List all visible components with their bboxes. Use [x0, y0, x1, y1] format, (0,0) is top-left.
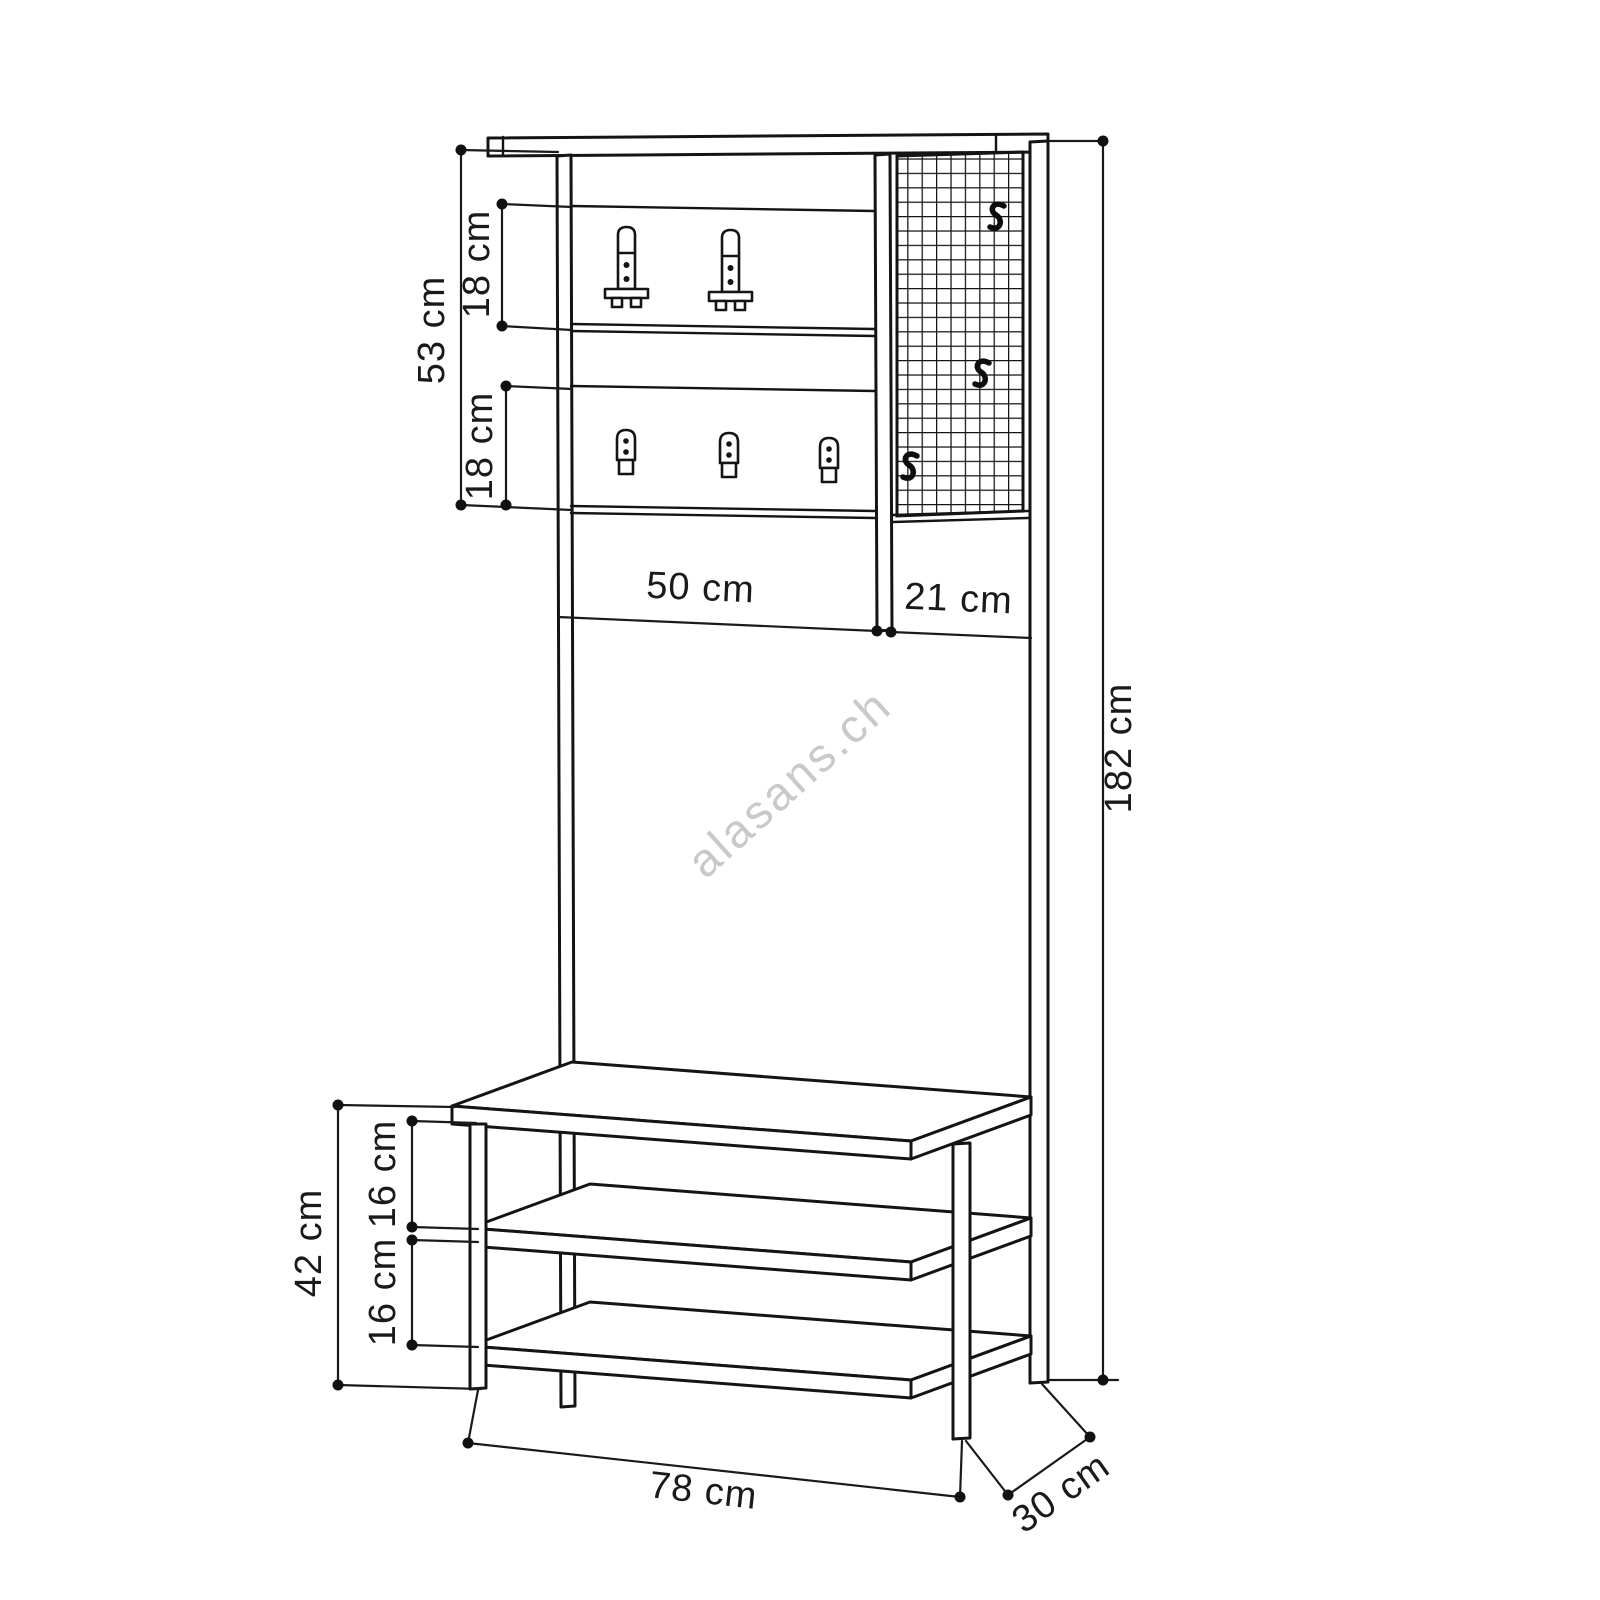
dimension-16cm-upper: 16 cm	[362, 1116, 478, 1233]
extension-line	[412, 1345, 478, 1347]
dimension-21cm: 21 cm	[886, 576, 1032, 638]
panel-line	[571, 324, 875, 329]
extension-line	[412, 1240, 478, 1242]
small-hook-icon	[617, 430, 635, 474]
dimension-label-21cm: 21 cm	[903, 576, 1013, 623]
right-post	[1030, 141, 1048, 1383]
dimension-label-53cm: 53 cm	[411, 276, 453, 384]
bench-seat	[452, 1062, 1031, 1159]
dimension-18cm-lower: 18 cm	[459, 381, 572, 511]
dimension-dot	[333, 1100, 344, 1111]
drawing-svg: 53 cm 18 cm 18 cm 50 cm 21	[0, 0, 1600, 1600]
extension-line	[468, 1390, 478, 1443]
bench-leg-front-right	[953, 1143, 970, 1439]
dimension-dot	[497, 199, 508, 210]
bench	[452, 1062, 1031, 1439]
dimension-dot	[1003, 1490, 1014, 1501]
mesh-grid-panel	[893, 152, 1028, 522]
dimension-dot	[407, 1116, 418, 1127]
extension-line	[966, 1441, 1008, 1495]
dimension-dot	[407, 1222, 418, 1233]
bench-leg-front-left	[470, 1124, 486, 1389]
panel-line	[571, 506, 875, 511]
small-hook-icon	[720, 433, 738, 477]
dimension-label-42cm: 42 cm	[288, 1189, 330, 1297]
bench-shelf-bottom	[470, 1302, 1031, 1398]
dimension-182cm: 182 cm	[1050, 136, 1140, 1386]
bench-shelf-middle	[470, 1184, 1031, 1280]
dimension-dot	[1098, 136, 1109, 147]
extension-line	[461, 505, 572, 510]
small-hook-icon	[820, 438, 838, 482]
dimension-16cm-lower: 16 cm	[362, 1235, 478, 1351]
coat-hook-icon	[709, 230, 752, 310]
dimension-30cm: 30 cm	[966, 1384, 1117, 1542]
dimension-18cm-upper: 18 cm	[456, 199, 572, 332]
extension-line	[338, 1385, 481, 1389]
panel-line	[571, 206, 875, 211]
dimension-dot	[497, 321, 508, 332]
dimension-dot	[1098, 1375, 1109, 1386]
extension-line	[338, 1105, 455, 1107]
dimension-label-182cm: 182 cm	[1098, 683, 1140, 814]
dimension-label-16cm-upper: 16 cm	[362, 1120, 404, 1228]
watermark-text: alasans.ch	[677, 678, 902, 888]
panel-line	[571, 513, 875, 518]
dimension-dot	[456, 145, 467, 156]
dimension-dot	[501, 381, 512, 392]
dimension-label-50cm: 50 cm	[645, 565, 755, 612]
coat-hook-icon	[605, 227, 648, 307]
dimension-dot	[886, 627, 897, 638]
dimension-label-30cm: 30 cm	[1005, 1445, 1118, 1542]
panel-line	[571, 386, 875, 391]
dimension-label-18cm-upper: 18 cm	[456, 210, 498, 318]
mesh-bottom-line	[893, 518, 1028, 522]
dimension-line	[558, 617, 877, 631]
dimension-dot	[407, 1235, 418, 1246]
dimension-label-18cm-lower: 18 cm	[459, 392, 501, 500]
dimension-dot	[955, 1492, 966, 1503]
extension-line	[960, 1441, 962, 1497]
dimension-dot	[1085, 1432, 1096, 1443]
dimension-line	[891, 632, 1031, 638]
panel-line	[571, 331, 875, 336]
dimension-dot	[407, 1340, 418, 1351]
dimension-dot	[463, 1438, 474, 1449]
extension-line	[412, 1227, 478, 1229]
extension-line	[1042, 1384, 1090, 1437]
dimension-dot	[501, 500, 512, 511]
furniture-technical-drawing: 53 cm 18 cm 18 cm 50 cm 21	[0, 0, 1600, 1600]
panel-divider	[875, 154, 892, 631]
dimension-dot	[872, 626, 883, 637]
dimension-50cm: 50 cm	[558, 565, 883, 637]
dimension-dot	[333, 1380, 344, 1391]
dimension-78cm: 78 cm	[463, 1390, 966, 1518]
dimension-label-16cm-lower: 16 cm	[362, 1238, 404, 1346]
